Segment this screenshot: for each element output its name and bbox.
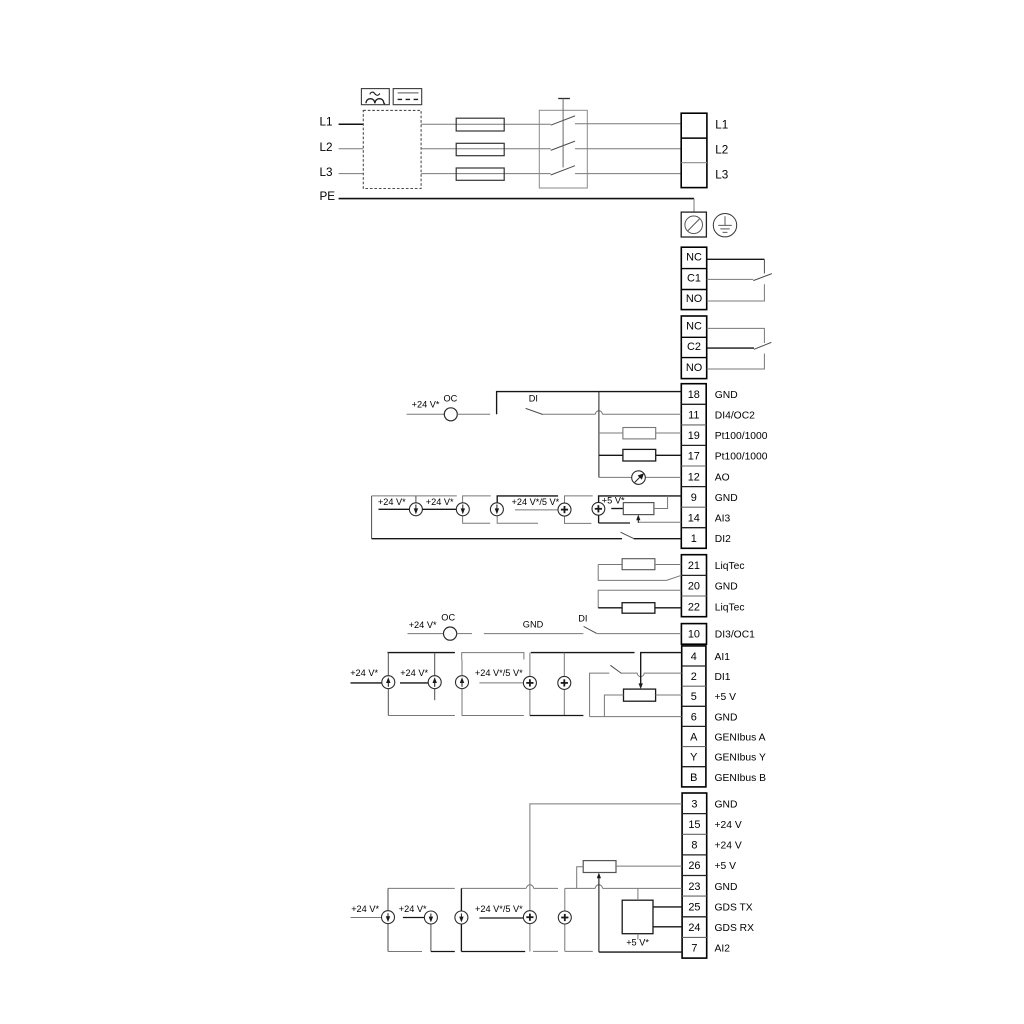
svg-text:10: 10 (688, 628, 700, 640)
svg-text:LiqTec: LiqTec (715, 561, 745, 572)
svg-text:DI1: DI1 (715, 672, 731, 683)
svg-text:+24 V*: +24 V* (399, 904, 427, 914)
svg-text:+5 V: +5 V (715, 861, 737, 872)
svg-text:+5 V: +5 V (715, 692, 737, 703)
svg-text:9: 9 (691, 492, 697, 504)
svg-text:GENIbus Y: GENIbus Y (715, 753, 766, 764)
svg-text:DI4/OC2: DI4/OC2 (715, 411, 755, 422)
svg-text:25: 25 (688, 902, 700, 914)
svg-text:+24 V*: +24 V* (409, 620, 437, 630)
svg-text:21: 21 (688, 560, 700, 572)
svg-text:18: 18 (688, 389, 700, 401)
svg-text:AI1: AI1 (715, 652, 731, 663)
svg-text:GDS TX: GDS TX (715, 903, 753, 914)
svg-text:L3: L3 (715, 168, 728, 181)
svg-text:GENIbus A: GENIbus A (715, 733, 766, 744)
svg-text:L3: L3 (320, 166, 333, 179)
svg-text:22: 22 (688, 601, 700, 613)
svg-text:GND: GND (715, 799, 738, 810)
svg-text:B: B (690, 772, 697, 784)
svg-text:AO: AO (715, 472, 730, 483)
svg-text:C1: C1 (687, 273, 701, 285)
svg-text:23: 23 (688, 881, 700, 893)
svg-text:A: A (690, 732, 698, 744)
svg-text:DI: DI (578, 614, 587, 624)
svg-text:12: 12 (688, 471, 700, 483)
svg-text:4: 4 (691, 651, 697, 663)
svg-text:OC: OC (441, 613, 455, 623)
svg-text:GND: GND (715, 390, 738, 401)
svg-text:GND: GND (715, 493, 738, 504)
svg-text:24: 24 (688, 922, 700, 934)
svg-text:LiqTec: LiqTec (715, 602, 745, 613)
svg-text:Y: Y (690, 752, 698, 764)
svg-text:Pt100/1000: Pt100/1000 (715, 452, 768, 463)
svg-text:NC: NC (686, 252, 702, 264)
svg-text:L2: L2 (320, 141, 333, 154)
svg-text:1: 1 (691, 533, 697, 545)
svg-text:NO: NO (686, 293, 702, 305)
svg-text:2: 2 (691, 671, 697, 683)
svg-text:+24 V*/5 V*: +24 V*/5 V* (512, 497, 560, 507)
svg-text:C2: C2 (687, 341, 701, 353)
svg-text:19: 19 (688, 430, 700, 442)
svg-text:8: 8 (691, 840, 697, 852)
svg-text:+24 V*: +24 V* (400, 668, 428, 678)
svg-text:NC: NC (686, 320, 702, 332)
svg-text:DI: DI (529, 393, 538, 403)
svg-text:5: 5 (691, 691, 697, 703)
svg-text:+24 V*/5 V*: +24 V*/5 V* (475, 904, 523, 914)
svg-text:+24 V*/5 V*: +24 V*/5 V* (475, 668, 523, 678)
svg-text:GND: GND (715, 582, 738, 593)
svg-text:Pt100/1000: Pt100/1000 (715, 431, 768, 442)
svg-text:L1: L1 (715, 119, 728, 132)
svg-text:11: 11 (688, 410, 699, 422)
svg-text:AI3: AI3 (715, 513, 731, 524)
svg-text:+24 V*: +24 V* (350, 668, 378, 678)
svg-text:NO: NO (686, 362, 702, 374)
svg-text:+5 V*: +5 V* (626, 937, 649, 947)
svg-text:20: 20 (688, 581, 700, 593)
svg-text:GND: GND (715, 712, 738, 723)
svg-text:DI2: DI2 (715, 534, 731, 545)
svg-text:17: 17 (688, 451, 700, 463)
svg-text:+24 V*: +24 V* (412, 400, 440, 410)
svg-text:+24 V*: +24 V* (351, 904, 379, 914)
svg-text:6: 6 (691, 711, 697, 723)
svg-text:GENIbus B: GENIbus B (715, 773, 767, 784)
svg-text:3: 3 (691, 798, 697, 810)
svg-text:PE: PE (320, 190, 336, 203)
svg-text:7: 7 (691, 943, 697, 955)
svg-text:15: 15 (688, 819, 700, 831)
svg-text:OC: OC (444, 393, 458, 403)
svg-text:GND: GND (715, 882, 738, 893)
svg-text:GND: GND (523, 620, 544, 630)
svg-text:+24 V: +24 V (715, 841, 742, 852)
svg-text:L2: L2 (715, 144, 728, 157)
svg-text:+5 V*: +5 V* (602, 496, 625, 506)
svg-text:+24 V*: +24 V* (426, 497, 454, 507)
svg-text:AI2: AI2 (715, 944, 731, 955)
svg-text:+24 V*: +24 V* (378, 497, 406, 507)
svg-text:14: 14 (688, 512, 700, 524)
svg-text:DI3/OC1: DI3/OC1 (715, 629, 755, 640)
svg-text:L1: L1 (320, 116, 333, 129)
svg-text:GDS RX: GDS RX (715, 923, 755, 934)
svg-text:+24 V: +24 V (715, 820, 742, 831)
svg-text:26: 26 (688, 860, 700, 872)
